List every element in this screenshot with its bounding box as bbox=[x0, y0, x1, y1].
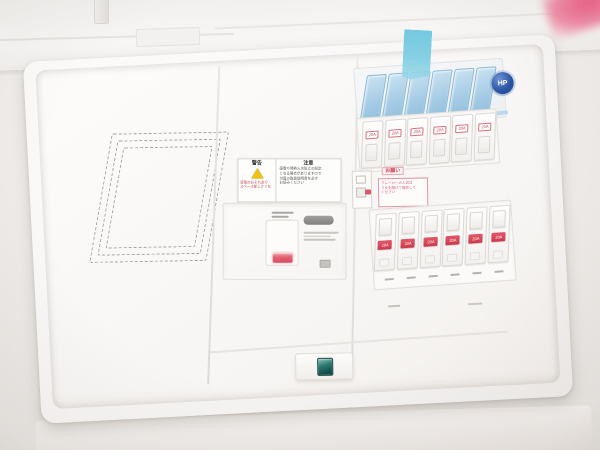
main-breaker-body bbox=[266, 220, 299, 266]
cover-hinge bbox=[94, 0, 109, 24]
breaker-toggle-handle bbox=[447, 213, 461, 231]
breaker-rating-label: 20A bbox=[378, 240, 392, 250]
knockout-score-line bbox=[106, 146, 213, 249]
request-sticker-text: ブレーカーの入切はフタを開けて操作してください bbox=[378, 177, 428, 207]
breaker-terminal bbox=[402, 257, 412, 266]
cover-latch bbox=[295, 352, 353, 380]
branch-circuit-breaker: 20A bbox=[383, 119, 405, 168]
main-breaker-switch-indicator bbox=[273, 253, 293, 263]
caution-text: 感電や発熱火災防止の設定となる場合がありますので付属の取扱説明書を必ずお読みくだ… bbox=[279, 166, 337, 185]
breaker-toggle-handle bbox=[365, 144, 378, 162]
branch-circuit-breaker: 20A bbox=[374, 213, 397, 272]
branch-circuit-breaker: 20A bbox=[419, 209, 442, 268]
warning-caution-sticker: 警告 感電のおそれありスペース部ふさぐな 注意 感電や発熱火災防止の設定となる場… bbox=[237, 158, 341, 202]
circuit-name-label-slot bbox=[487, 265, 510, 278]
warning-triangle-icon bbox=[251, 168, 263, 178]
branch-circuit-breaker: 20A bbox=[397, 211, 420, 270]
lid-tab bbox=[136, 27, 201, 47]
panel-enclosure: 警告 感電のおそれありスペース部ふさぐな 注意 感電や発熱火災防止の設定となる場… bbox=[23, 34, 573, 423]
breaker-toggle-handle bbox=[433, 139, 446, 157]
branch-circuit-breaker: 20A bbox=[428, 115, 450, 164]
main-breaker-test-button bbox=[304, 216, 334, 225]
breaker-rating-label: 20A bbox=[388, 129, 401, 138]
breaker-rating-label: 20A bbox=[411, 127, 424, 136]
blank-label-dash bbox=[385, 278, 394, 280]
breaker-toggle-handle bbox=[388, 142, 401, 160]
breaker-rating-label: 20A bbox=[455, 124, 468, 133]
branch-circuit-breaker: 20A bbox=[406, 117, 428, 166]
masking-tape-strip bbox=[402, 29, 433, 80]
breaker-toggle-handle bbox=[493, 210, 507, 228]
branch-circuit-breaker: 20A bbox=[361, 120, 383, 169]
warning-red-text: 感電のおそれありスペース部ふさぐな bbox=[240, 180, 274, 188]
meter-space-knockout bbox=[89, 132, 229, 263]
branch-circuit-breaker: 20A bbox=[473, 112, 495, 161]
breaker-rating-label: 20A bbox=[446, 235, 460, 245]
branch-circuit-breaker: 20A bbox=[442, 208, 465, 267]
breaker-toggle-handle bbox=[455, 137, 468, 155]
diagram-rect bbox=[356, 176, 366, 184]
caution-cell: 注意 感電や発熱火災防止の設定となる場合がありますので付属の取扱説明書を必ずお読… bbox=[276, 159, 340, 201]
breaker-terminal bbox=[379, 258, 389, 267]
breaker-rating-label: 20A bbox=[401, 238, 415, 248]
circuit-name-label-slot bbox=[400, 271, 423, 284]
circuit-name-label-slot bbox=[444, 268, 467, 281]
breaker-terminal bbox=[493, 250, 503, 259]
circuit-name-label-slot bbox=[465, 266, 488, 279]
main-breaker-fine-print bbox=[304, 232, 339, 243]
diagram-red-mark bbox=[365, 189, 371, 194]
breaker-row-upper: 20A 20A 20A 20A 20A 20A bbox=[360, 112, 496, 168]
breaker-toggle-handle bbox=[410, 140, 423, 158]
branch-circuit-breaker: 20A bbox=[488, 205, 511, 264]
mini-diagram bbox=[352, 170, 373, 208]
main-breaker-plate bbox=[223, 203, 347, 280]
breaker-rating-label: 20A bbox=[492, 232, 506, 242]
breaker-rating-label: 20A bbox=[424, 237, 438, 247]
breaker-rating-label: 20A bbox=[478, 123, 491, 132]
breaker-terminal bbox=[448, 253, 458, 262]
blank-label-dash bbox=[472, 272, 481, 274]
breaker-rating-label: 20A bbox=[366, 130, 379, 139]
breaker-toggle-handle bbox=[478, 136, 491, 154]
circuit-name-label-slot bbox=[378, 272, 401, 285]
breaker-toggle-handle bbox=[379, 218, 393, 236]
breaker-toggle-handle bbox=[470, 212, 484, 230]
circuit-name-label-slot bbox=[422, 269, 445, 282]
branch-circuit-breaker: 20A bbox=[451, 114, 473, 163]
breaker-rating-label: 20A bbox=[469, 234, 483, 244]
breaker-terminal bbox=[425, 255, 435, 264]
branch-circuit-breaker: 20A bbox=[465, 206, 488, 265]
warning-cell: 警告 感電のおそれありスペース部ふさぐな bbox=[238, 159, 276, 201]
request-sticker-group: お願い ブレーカーの入切はフタを開けて操作してください bbox=[352, 166, 431, 211]
blank-label-dash bbox=[429, 275, 438, 277]
breaker-toggle-handle bbox=[402, 216, 416, 234]
blank-label-dash bbox=[407, 277, 416, 279]
blank-label-dash bbox=[494, 271, 503, 273]
distribution-board-photo: 警告 感電のおそれありスペース部ふさぐな 注意 感電や発熱火災防止の設定となる場… bbox=[0, 0, 600, 450]
breaker-terminal bbox=[470, 252, 480, 261]
breaker-rating-label: 20A bbox=[433, 126, 446, 135]
blank-label-dash bbox=[450, 274, 459, 276]
breaker-row-lower: 20A 20A 20A 20A 20A 20A bbox=[373, 205, 512, 271]
warning-title: 警告 bbox=[252, 160, 262, 166]
breaker-toggle-handle bbox=[425, 215, 439, 233]
main-breaker-mark bbox=[320, 260, 331, 268]
latch-button-teal bbox=[317, 358, 333, 376]
request-sticker-title: お願い bbox=[382, 167, 404, 175]
